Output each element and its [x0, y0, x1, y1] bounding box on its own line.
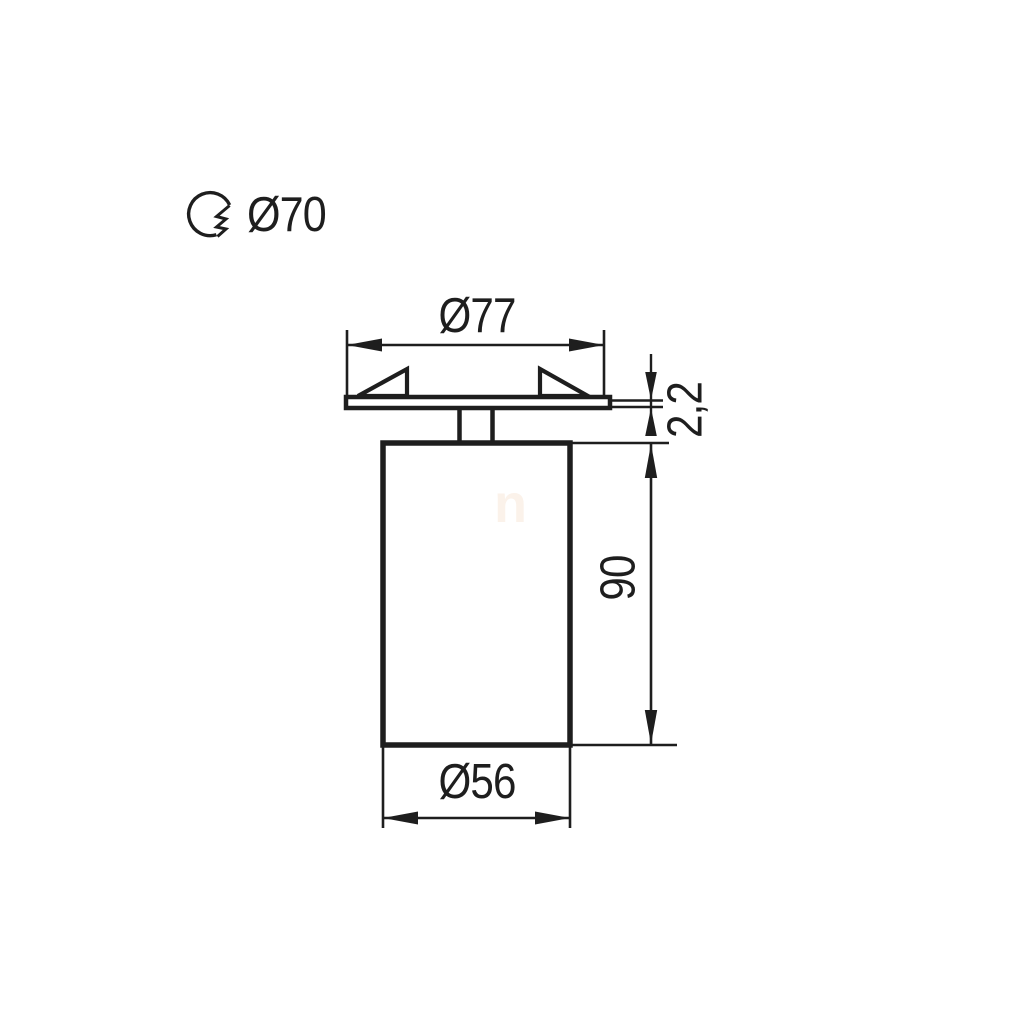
flange-diameter-label: Ø77	[438, 292, 515, 341]
cutout-diameter-label: Ø70	[247, 191, 326, 240]
cutout-jagged-edge	[217, 206, 230, 237]
dimension-arrow-down	[645, 710, 657, 744]
dimension-arrow-right	[535, 812, 570, 825]
flange-thickness-label: 2,2	[662, 382, 711, 438]
dimension-arrow-right	[569, 339, 604, 352]
cutout-hole-icon	[189, 193, 230, 237]
dimension-arrow-left	[347, 339, 382, 352]
dimension-arrow-up	[645, 408, 657, 436]
fixture-outline	[346, 369, 610, 745]
watermark: n	[494, 477, 527, 531]
spring-clip-left	[358, 369, 407, 396]
lamp-body	[383, 443, 570, 745]
dimension-arrow-up	[645, 444, 657, 478]
drawing-canvas: n Ø70 Ø77 2,2 90 Ø56	[0, 0, 1010, 1010]
mounting-plate	[346, 397, 610, 408]
body-diameter-label: Ø56	[438, 758, 515, 807]
body-height-label: 90	[595, 555, 644, 600]
dimension-arrow-left	[383, 812, 418, 825]
flange-thickness-dimension	[612, 354, 663, 436]
dimension-arrow-down	[645, 372, 657, 400]
spring-clip-right	[540, 369, 588, 396]
